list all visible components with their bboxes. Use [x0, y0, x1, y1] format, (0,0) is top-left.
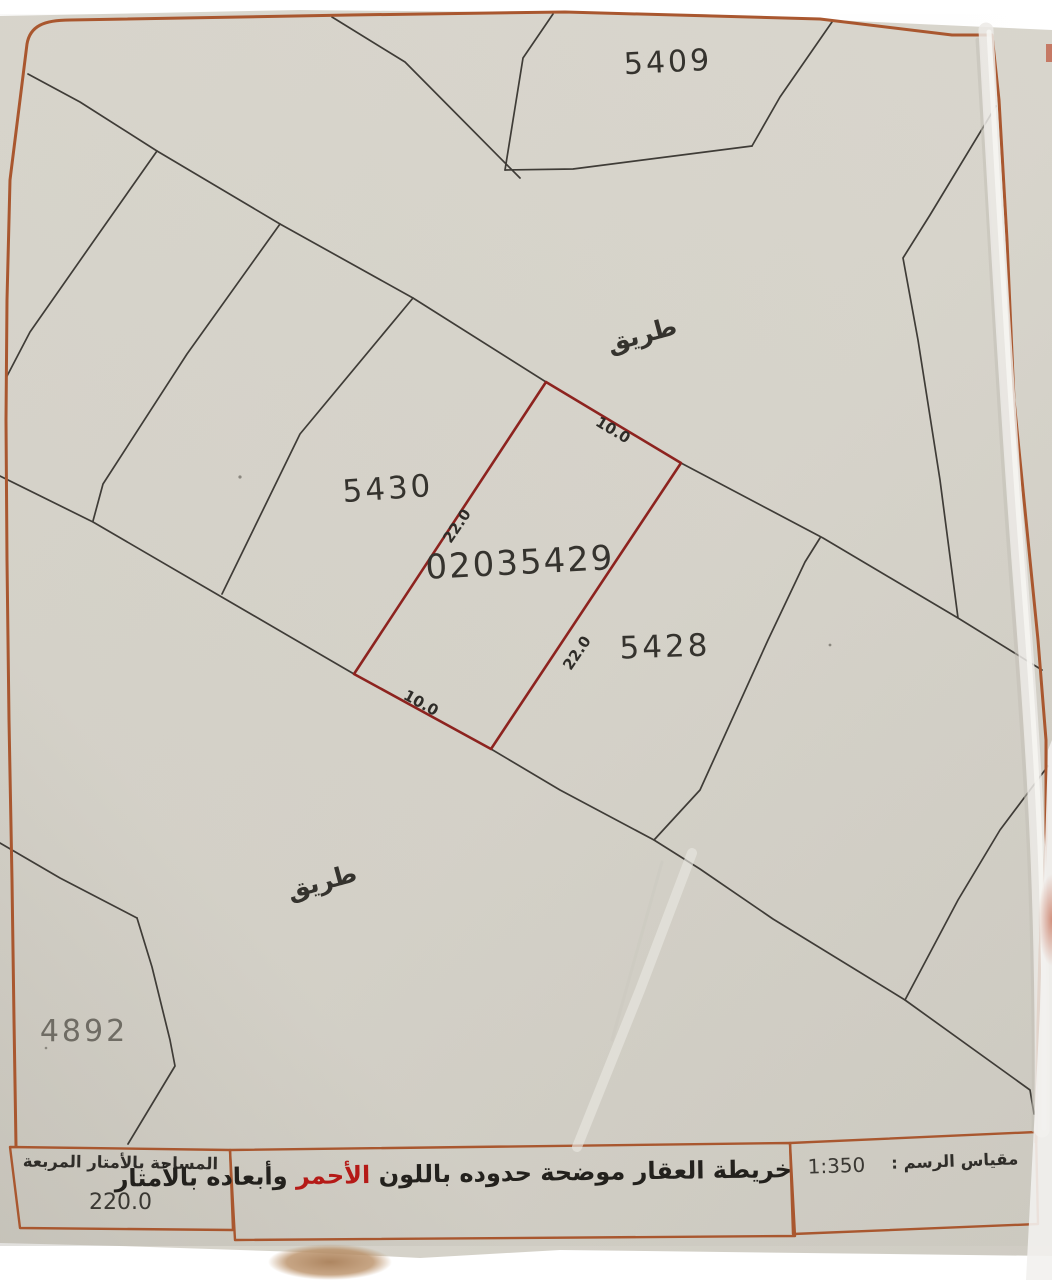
legend-scale-value: 1:350 — [807, 1154, 865, 1179]
legend-scale-label: مقياس الرسم : — [891, 1150, 1019, 1173]
plot-label-5409: 5409 — [623, 43, 713, 83]
plot-label-5428: 5428 — [619, 627, 711, 666]
cadastral-map-svg: 5409 5430 02035429 5428 4892 طريق طريق 1… — [0, 0, 1052, 1280]
legend-area-value: 220.0 — [18, 1190, 223, 1215]
finger-bottom-icon — [268, 1244, 392, 1280]
finger-topright-icon — [1046, 44, 1052, 62]
paper-shading — [0, 14, 1052, 1246]
legend-note-after: وأبعاده بالأمتار — [114, 1162, 287, 1192]
legend-note-before: خريطة العقار موضحة حدوده باللون — [378, 1155, 792, 1189]
plot-label-5430: 5430 — [341, 468, 434, 510]
cadastral-map-photo: 5409 5430 02035429 5428 4892 طريق طريق 1… — [0, 0, 1052, 1280]
legend-note-highlight: الأحمر — [296, 1161, 371, 1190]
plot-label-4892: 4892 — [40, 1014, 128, 1049]
